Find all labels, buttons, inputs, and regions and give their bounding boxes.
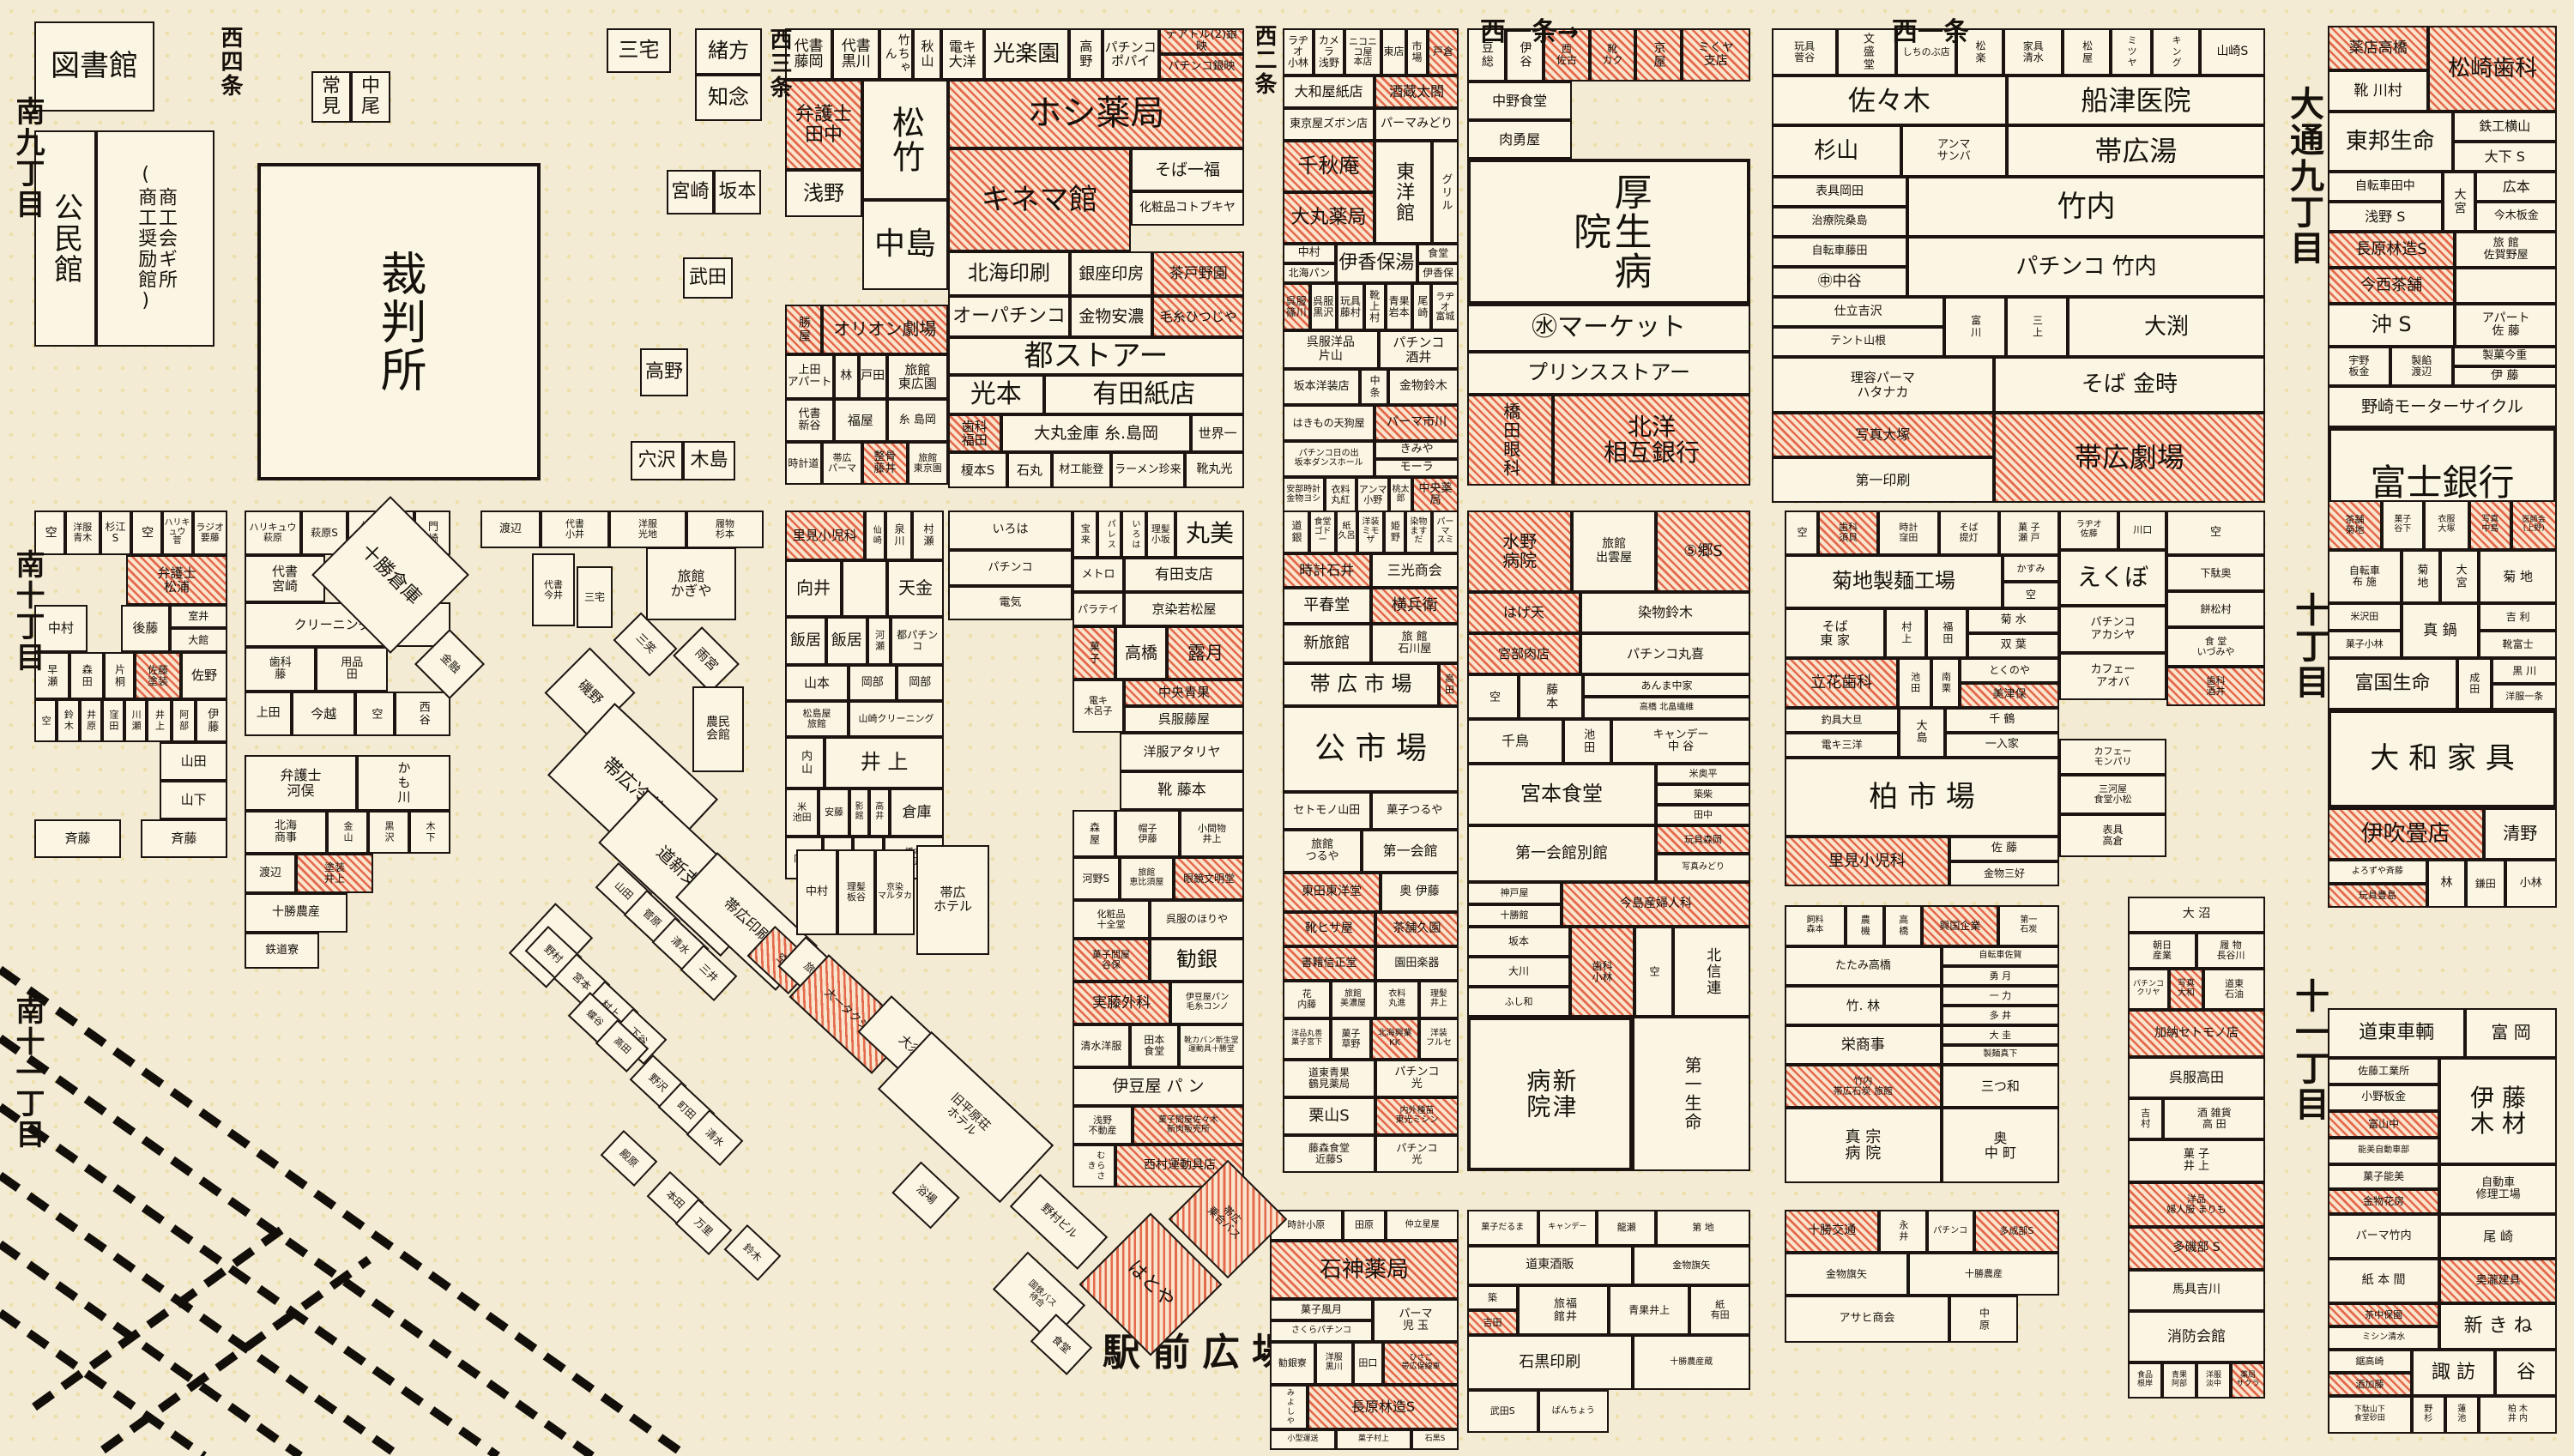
building-label: 材工能登 [1059,464,1103,476]
empty-lot [2059,700,2166,739]
building-label: 高田 [1444,674,1454,696]
building-label: 靴カク [1602,44,1622,66]
building-cell: 呉服藤屋 [1124,706,1244,733]
building-label: 浅野 [803,183,844,205]
building-cell: 知念 [695,75,762,121]
street-label: 西一条→ [1480,10,1579,48]
building-cell: 松屋 [2063,28,2110,76]
building-label: 田原 [1355,1220,1374,1230]
building-label: 第一石炭 [2020,916,2037,935]
building-cell: パーマスミ [1432,511,1459,553]
building-cell: 時計道 [785,442,822,485]
building-cell: 茶舗久園 [1375,912,1459,946]
building-cell: 諏 訪 [2412,1350,2496,1396]
building-cell: 奥中 町 [1942,1108,2059,1183]
building-label: 中村 [806,886,828,898]
building-cell: 道東酒販 [1467,1246,1633,1285]
building-cell: パチンコ丸喜 [1580,633,1750,674]
building-cell: 丸美 [1175,511,1244,558]
building-label: 内山 [799,750,811,776]
building-cell: 松島屋旅館 [785,701,849,737]
building-cell: 理容パーマハタナカ [1772,357,1994,413]
building-cell: 築 [1467,1285,1518,1310]
building-label: パチンコポパイ [1105,40,1157,68]
building-label: 常見 [313,76,349,118]
building-cell: カフェーアオバ [2059,653,2166,700]
building-cell: 青果井上 [1609,1285,1689,1335]
building-cell: 玩具菅谷 [1772,28,1837,76]
building-cell: 南栗 [1931,658,1960,708]
building-cell: 塗装井上 [296,854,373,893]
building-cell: 沖 S [2328,304,2455,347]
building-label: 菓子谷下 [2394,516,2411,535]
building-cell: 池田 [1563,719,1611,764]
building-label: 茶舗菊地 [2346,515,2365,535]
building-cell: 山田 [160,742,227,781]
empty-lot [1785,1343,2059,1386]
building-label: キャンデー [1548,1223,1586,1232]
building-label: 築柴 [1694,789,1713,800]
building-label: 丸美 [1186,521,1234,547]
building-label: 平春堂 [1303,597,1350,613]
building-label: しちのぶ店 [1903,47,1950,57]
building-label: 中野食堂 [1492,94,1547,108]
building-cell: 旅 館佐賀野屋 [2455,232,2557,268]
building-cell: 美津保 [1960,683,2059,708]
building-label: 光本 [970,381,1022,408]
building-cell: 呉服のほりや [1150,900,1244,939]
building-label: オーパチンコ [952,306,1066,327]
building-label: 竹. 林 [1846,999,1881,1012]
building-label: 富士銀行 [2370,463,2514,502]
building-cell-rotated: 京染マルタカ [875,849,915,935]
building-cell: 鉄工横山 [2453,112,2557,142]
building-cell: 金山 [327,811,368,854]
building-label: 菓子風月 [1301,1304,1342,1315]
building-cell: 小林 [2505,860,2557,908]
building-label: 第一生命 [1682,1056,1701,1132]
building-cell: 洋装フルセ [1419,1018,1459,1060]
building-cell: 十勝農産 [1908,1253,2059,1296]
building-cell: 旅館東広園 [887,354,948,399]
building-cell: 靴カバン新生堂運動具十勝堂 [1179,1024,1244,1067]
building-cell: 千秋庵 [1283,141,1375,192]
building-label: 洋服青木 [73,523,92,543]
building-label: 尾崎 [1417,295,1428,319]
building-cell: 山崎S [2200,28,2265,76]
building-cell: 自転車布 施 [2328,550,2402,603]
building-cell: 福井旅館 [1518,1285,1609,1335]
building-label: 弁護士田中 [795,105,852,146]
building-label: 長原林造S [2355,241,2426,257]
railway-track-line [0,970,686,1456]
building-label: 金物旗矢 [1826,1269,1867,1280]
building-label: 旅館東京園 [914,453,942,474]
building-cell: 写真大塚 [1772,413,1994,457]
building-label: 空 [1487,691,1499,704]
building-label: 金物安濃 [1079,308,1144,326]
building-label: 京屋 [1652,41,1665,69]
building-cell: ⑤郷S [1656,511,1750,592]
building-label: 商工会ギ所(商工奨励館) [135,164,176,313]
building-label: 室井 [188,611,208,622]
building-label: 化粧品十全堂 [1097,909,1126,930]
building-label: 森屋 [1089,822,1100,846]
building-cell: 清水洋服 [1072,1024,1130,1067]
building-cell: 福田 [1926,608,1967,658]
building-label: 弁護士河俣 [280,768,321,798]
building-label: 空 [1796,527,1807,539]
building-cell: 菓子風月 [1270,1299,1373,1320]
building-label: 高井 [871,803,888,822]
building-label: 栄商事 [1841,1037,1885,1053]
building-label: 真 宗病 院 [1846,1129,1882,1163]
building-cell: 高田 [1439,663,1459,706]
building-label: 理髪井上 [1430,990,1447,1009]
building-label: 紙久呂 [1338,523,1356,541]
building-label: 道東青果鶴見薬局 [1308,1067,1350,1090]
building-cell: 理髪井上 [1419,981,1459,1018]
building-cell: 大 和 家 具 [2328,710,2557,808]
building-cell: 富 岡 [2465,1008,2557,1058]
building-cell: パチンコアカシヤ [2059,606,2166,653]
building-cell: 大 沼 [2128,897,2265,933]
building-cell: 金物旗矢 [1633,1246,1751,1285]
building-label: 影館 [851,803,868,822]
building-label: 電キ三洋 [1822,740,1863,751]
building-cell: アサヒ商会 [1785,1296,1949,1343]
building-cell: 靴 川村 [2328,70,2428,112]
building-label: 十勝交通 [1808,1224,1856,1237]
building-label: 糸 島岡 [899,414,936,426]
building-cell: 実藤外科 [1072,982,1170,1024]
building-cell: キャンデー中 谷 [1611,719,1750,764]
building-label: むらさき [1085,1146,1103,1186]
building-cell: パーマみどり [1375,108,1459,141]
building-cell: 洋服青木 [65,511,100,555]
building-label: パーマみどり [1381,118,1453,130]
building-label: 酒 雑貨高 田 [2197,1108,2232,1130]
building-label: パチンコ日の出坂本ダンスホール [1295,450,1363,468]
building-label: 代書新谷 [798,408,820,432]
railway-track-line [0,1038,592,1456]
building-cell: 神戸屋 [1467,882,1562,904]
building-label: 菓子問屋谷保 [1092,950,1130,970]
empty-lot [1572,82,1750,120]
building-cell: パチンコ酒井 [1379,330,1459,369]
building-cell: 奥 伊藤 [1381,873,1459,912]
empty-lot [1072,733,1120,771]
building-cell: 弁護士河俣 [245,755,357,811]
building-cell: パチンコ光 [1375,1135,1459,1173]
building-label: 酒加藤 [2355,1380,2384,1390]
building-cell: 榎本S [948,452,1007,488]
building-cell: 玩具豊島 [2328,884,2427,908]
building-label: 宮本 [571,970,593,993]
building-cell: 仲立星屋 [1386,1210,1459,1241]
building-label: 道東酒販 [1526,1259,1574,1272]
building-cell: 市場 [1406,28,1428,76]
building-cell: 食堂ゴドー [1309,511,1336,553]
building-cell: 大宮 [2443,172,2476,232]
building-label: 万里 [692,1216,715,1238]
building-cell: 道東青果鶴見薬局 [1283,1060,1375,1097]
building-label: 林 [2441,877,2453,890]
building-label: 勝屋 [797,316,810,343]
building-label: 三宅 [584,592,605,603]
building-cell: 渡辺 [480,511,541,548]
building-label: テアトル(2)銀映 [1161,29,1242,53]
building-label: 興国企業 [1939,921,1980,932]
building-cell: 川口 [2118,511,2166,550]
building-label: 知念 [708,87,749,109]
building-cell: アパート佐 藤 [2455,304,2557,347]
building-label: 勧銀 [1176,949,1218,971]
building-label: 山崎クリーニング [859,714,934,724]
building-label: 旅館つるや [1306,839,1339,863]
building-cell: ㊌マーケット [1467,305,1750,352]
building-label: アパート佐 藤 [2482,312,2530,338]
building-label: 中条 [1369,375,1380,399]
building-label: 玩具菅谷 [1794,41,1815,63]
building-label: 下駄奥 [2200,568,2231,579]
building-label: 菊 水 [2001,614,2027,626]
building-label: 時計窪田 [1899,523,1918,543]
building-cell: 旅館つるや [1283,830,1362,873]
building-cell: 洋品婦人服 まりも [2128,1182,2265,1227]
building-cell: 十勝農産 [245,893,347,933]
building-cell: 影館 [849,788,870,837]
building-label: 武田 [689,268,727,288]
building-cell: 旅館出雲屋 [1572,511,1656,592]
building-label: 自転車佐賀 [1979,952,2021,961]
building-label: 菓 子井 上 [2184,1149,2209,1173]
building-label: 用品田 [341,657,363,681]
building-label: 道東石油 [2225,979,2244,1000]
building-cell: 安部時計金物ヨシ [1283,477,1325,513]
building-cell: 杉江S [100,511,131,555]
building-label: 東邦生命 [2346,130,2435,154]
building-cell: 下駄山下食堂砂田 [2328,1396,2412,1434]
building-label: 千鳥 [1501,734,1529,748]
building-label: 洋服一条 [2505,692,2543,702]
building-cell: 電キ大洋 [941,28,984,80]
building-cell: 船津医院 [2007,76,2265,125]
building-label: 青果井上 [1628,1305,1670,1316]
building-cell: 東店 [1381,28,1406,76]
building-label: 表具高倉 [2102,825,2123,847]
building-label: 図書館 [51,51,138,82]
building-cell: 富川 [1944,297,2006,357]
building-cell: いろは [948,511,1072,550]
building-label: 奥 伊藤 [1399,885,1439,898]
building-cell: 酒加藤 [2328,1373,2412,1396]
building-label: 北洋相互銀行 [1604,414,1700,466]
street-label: 南九丁目 [7,96,49,220]
building-cell: 裁判所 [257,163,541,480]
building-label: パーマ市川 [1387,416,1447,429]
building-cell: 朝日産業 [2128,933,2196,969]
building-label: 染物ますだ [1407,518,1430,546]
building-label: 千秋庵 [1297,155,1359,178]
building-label: 弁護士松浦 [158,566,196,594]
building-label: 南栗 [1941,672,1951,694]
building-label: 吉田 [1483,1318,1501,1328]
building-label: 鉄道寮 [265,945,299,957]
building-cell: 秋山 [913,28,941,80]
building-label: 片桐 [114,664,125,688]
building-label: 松島屋旅館 [803,709,831,729]
building-label: 三河屋食堂小松 [2094,784,2132,805]
building-label: 北海印刷 [968,263,1050,285]
building-label: 衣料丸進 [1388,990,1405,1009]
empty-lot [121,819,141,858]
building-cell: メトロ [1072,558,1124,592]
building-cell: 姫野 [1384,511,1405,553]
building-cell: 帯 広 市 場 [1283,663,1439,706]
building-cell: 靴丸光 [1185,452,1244,488]
building-label: 大下 S [2485,149,2525,164]
building-label: 河野S [1082,873,1109,885]
building-label: 製餡渡辺 [2411,355,2432,378]
building-cell: 茶中保園 [2328,1303,2439,1326]
building-label: 写真大和 [2178,980,2195,999]
building-cell: 藤本 [1519,674,1583,719]
building-label: 雨宮 [692,646,720,674]
building-cell: 菓子問屋谷保 [1072,939,1150,982]
building-label: みよしや [1284,1388,1293,1426]
building-cell: 吉村 [2128,1098,2163,1139]
building-label: パチンコ光 [1394,1066,1439,1090]
building-cell: 長原林造S [1308,1385,1459,1429]
building-cell: ミツヤ [2111,28,2152,76]
building-cell: 築柴 [1656,784,1750,805]
building-cell: 光楽園 [984,28,1069,80]
building-label: 菓子能美 [2363,1171,2404,1182]
building-label: 菓子小林 [2346,639,2384,649]
building-label: 河瀬 [874,630,885,652]
building-cell: 代書宮崎 [245,555,325,602]
building-label: 磯野 [575,678,605,708]
building-cell: 呉服篠川 [1283,283,1310,330]
building-cell: 菓子つるや [1371,792,1459,830]
building-label: パチンコ 竹内 [2015,255,2156,279]
building-label: 向井 [796,579,831,598]
building-label: とくのや [1989,665,2030,676]
building-label: 龍瀬 [1617,1223,1636,1233]
building-label: ラヂオ富城 [1433,292,1457,323]
building-cell: ラヂオ富城 [1431,283,1459,330]
building-label: 下駄山下食堂砂田 [2354,1406,2385,1423]
building-cell: パレス [1097,511,1122,558]
building-label: 市場 [1408,41,1426,63]
building-label: 旅館東広園 [898,363,937,390]
building-cell: 洋服淡中 [2196,1362,2231,1399]
building-cell: 時計窪田 [1878,511,1938,555]
building-label: 帯広湯 [2094,136,2177,166]
building-cell: 仕立吉沢 [1772,297,1944,327]
building-label: 浴場 [914,1183,938,1207]
building-cell: ぱんちょう [1538,1390,1610,1433]
building-cell: 旅館東京園 [908,442,949,485]
building-label: 大館 [188,635,208,646]
building-cell: 有田紙店 [1044,375,1244,414]
building-label: 大宮 [2454,564,2466,589]
building-cell: 宮本食堂 [1467,764,1656,825]
building-label: 中尾 [353,76,389,118]
building-cell: 鎌田 [2466,860,2505,908]
building-cell: 高橋 [1115,626,1167,680]
building-label: パラテイ [1078,604,1119,615]
building-cell: 空 [1467,674,1519,719]
building-label: 鉄工横山 [2479,119,2530,133]
building-cell: 村上 [1885,608,1926,658]
building-label: モーラ [1400,462,1434,474]
building-label: 一入家 [1985,739,2019,751]
building-label: 第一印刷 [1855,473,1910,487]
building-cell: 旅 館石川屋 [1371,624,1459,663]
building-label: 石黒印刷 [1519,1354,1580,1370]
building-cell: 東京屋ズボン店 [1283,108,1375,141]
building-cell: 道東石油 [2203,969,2265,1010]
building-cell: 新 き ね [2439,1303,2557,1350]
building-cell: パーマ市川 [1375,405,1459,441]
building-cell: 菓 子井 上 [2128,1139,2265,1182]
building-cell: 眼鏡文明堂 [1174,857,1244,900]
building-cell: かすみ [2003,555,2059,582]
railway-track-line [0,1313,204,1456]
building-cell: 飼料森本 [1785,905,1846,946]
building-label: 靴ヒサ屋 [1305,922,1353,935]
building-label: 宝来 [1079,523,1090,546]
building-label: プリンスストアー [1527,362,1690,384]
building-label: 歯科須貝 [1839,523,1858,543]
building-label: ラヂオ小林 [1284,35,1312,69]
building-label: 小林 [2520,878,2542,890]
building-cell: 呉服黒沢 [1310,283,1338,330]
building-label: 食堂 [1428,248,1448,259]
building-label: 木下 [425,821,435,843]
building-label: 多 井 [1990,1011,2012,1021]
building-cell-rotated: 旅館かぎや [646,547,736,620]
building-cell: 伊 藤 [2453,366,2557,386]
building-label: 竹内帯広石炭 旅館 [1834,1076,1894,1097]
building-label: 穴沢 [637,450,675,471]
building-cell: 勧銀寮 [1270,1342,1315,1385]
building-label: 旅 館石川屋 [1398,631,1431,656]
building-label: 大宮 [2452,188,2465,215]
building-label: 西村運動具店 [1144,1159,1216,1172]
building-cell: 医師会(上野) [2511,500,2557,550]
building-cell: 呉服高田 [2128,1057,2265,1098]
building-cell: 木下 [409,811,450,854]
building-label: 伊香保湯 [1338,253,1414,274]
empty-lot [319,933,450,969]
street-label: 西一条 [1892,10,1969,48]
building-label: 裁判所 [374,250,424,394]
building-label: 里見小児科 [1828,853,1906,869]
building-label: 鋸高崎 [2355,1356,2384,1367]
building-label: 上田アパート [788,365,832,389]
building-label: 斉藤 [65,831,91,845]
building-label: 金物三好 [1984,868,2025,879]
building-label: 食品根岸 [2137,1372,2153,1388]
building-label: 写真大塚 [1855,427,1910,442]
building-cell: 帯広劇場 [1994,413,2265,503]
building-cell: パラテイ [1072,592,1124,626]
building-cell: 今木板金 [2475,202,2557,232]
building-cell: 紙 本 間 [2328,1259,2439,1303]
